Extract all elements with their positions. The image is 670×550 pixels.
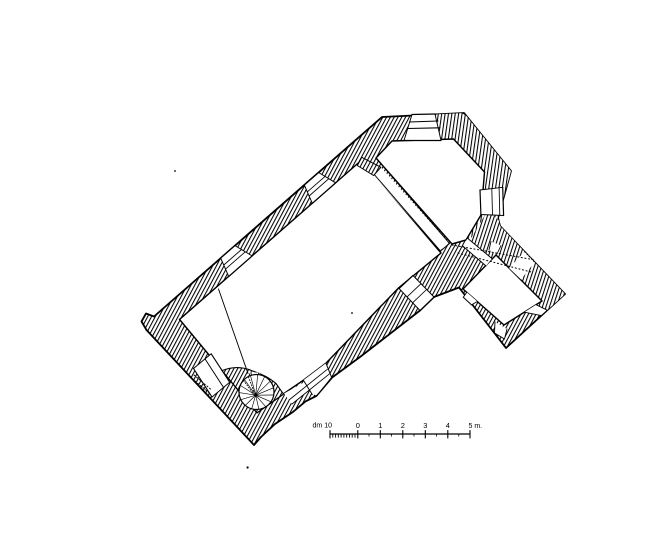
- svg-text:dm 10: dm 10: [313, 423, 333, 430]
- svg-text:4: 4: [446, 421, 450, 430]
- svg-text:5 m.: 5 m.: [469, 423, 483, 430]
- svg-text:3: 3: [423, 421, 427, 430]
- svg-text:2: 2: [401, 421, 405, 430]
- svg-text:0: 0: [356, 421, 360, 430]
- svg-text:1: 1: [378, 421, 382, 430]
